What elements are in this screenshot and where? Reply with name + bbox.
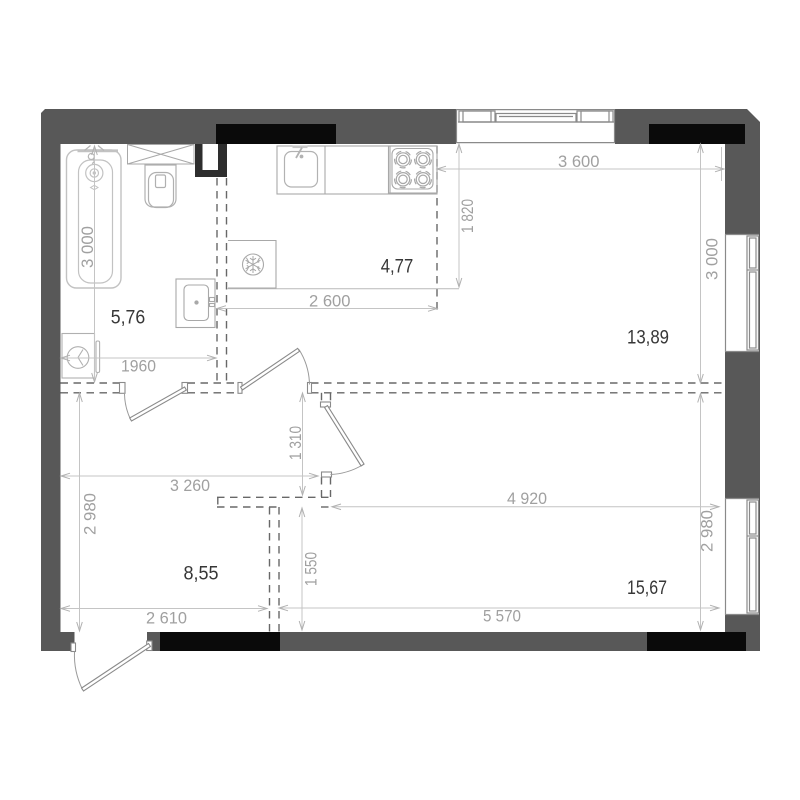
svg-text:15,67: 15,67 [627,578,667,599]
svg-text:1 310: 1 310 [286,426,305,460]
svg-text:13,89: 13,89 [627,328,669,349]
svg-text:2 980: 2 980 [81,493,100,535]
svg-text:5 570: 5 570 [483,607,521,626]
svg-text:5,76: 5,76 [111,308,146,329]
svg-text:8,55: 8,55 [184,564,219,585]
svg-text:1960: 1960 [121,357,156,376]
svg-text:3 260: 3 260 [170,476,210,495]
svg-text:3 000: 3 000 [703,238,722,280]
svg-text:3 600: 3 600 [558,152,600,171]
svg-text:2 610: 2 610 [146,609,187,628]
svg-text:4,77: 4,77 [381,257,414,278]
svg-text:1 820: 1 820 [458,199,477,233]
svg-text:2 600: 2 600 [309,292,351,311]
svg-text:2 980: 2 980 [698,510,717,552]
svg-text:1 550: 1 550 [302,552,321,586]
svg-text:4 920: 4 920 [507,489,547,508]
svg-text:3 000: 3 000 [78,226,97,268]
